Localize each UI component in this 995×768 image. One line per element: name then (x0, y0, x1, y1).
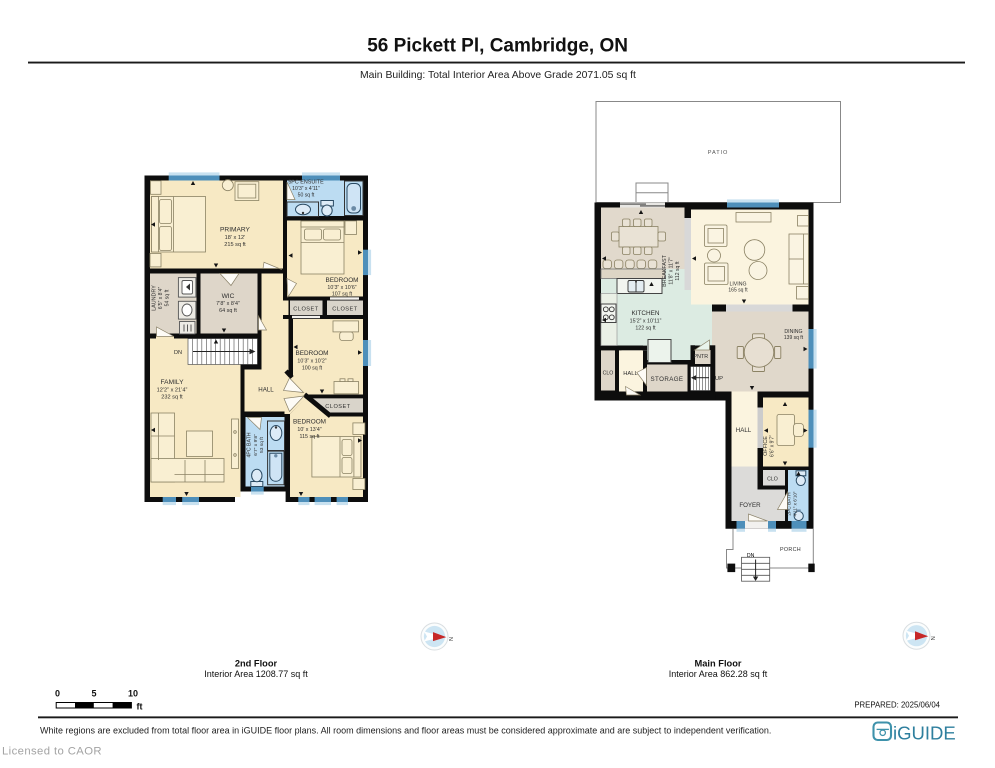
svg-text:FOYER: FOYER (739, 502, 761, 509)
svg-text:STORAGE: STORAGE (651, 376, 684, 383)
svg-text:FAMILY: FAMILY (161, 379, 185, 386)
svg-text:PRIMARY: PRIMARY (220, 227, 251, 234)
svg-text:BREAKFAST: BREAKFAST (662, 254, 668, 286)
svg-text:53 sq ft: 53 sq ft (259, 436, 265, 453)
svg-text:7’8” x 8’4”: 7’8” x 8’4” (216, 301, 240, 307)
svg-text:BEDROOM: BEDROOM (293, 419, 326, 426)
svg-text:BEDROOM: BEDROOM (295, 350, 328, 357)
svg-text:HALL: HALL (623, 371, 638, 377)
svg-text:10’3” x 10’6”: 10’3” x 10’6” (327, 285, 356, 291)
svg-text:4’11” x 6’10”: 4’11” x 6’10” (793, 491, 798, 516)
svg-text:6’7” x 9’8”: 6’7” x 9’8” (253, 434, 259, 456)
svg-text:0: 0 (55, 688, 60, 698)
svg-text:6’5” x 8’4”: 6’5” x 8’4” (158, 287, 164, 310)
svg-text:Main Floor: Main Floor (695, 659, 742, 669)
svg-text:CLOSET: CLOSET (332, 306, 357, 312)
svg-text:PATIO: PATIO (708, 150, 728, 156)
svg-text:112 sq ft: 112 sq ft (675, 261, 681, 281)
svg-text:HALL: HALL (736, 427, 752, 434)
svg-text:6’6” x 9’7”: 6’6” x 9’7” (770, 435, 776, 457)
svg-text:N: N (447, 637, 453, 641)
svg-text:139 sq ft: 139 sq ft (784, 335, 804, 341)
svg-text:5: 5 (91, 688, 96, 698)
svg-text:64 sq ft: 64 sq ft (219, 308, 237, 314)
svg-text:11’8” x 11’7”: 11’8” x 11’7” (669, 257, 675, 285)
svg-text:56 Pickett Pl, Cambridge, ON: 56 Pickett Pl, Cambridge, ON (367, 36, 628, 57)
svg-text:165 sq ft: 165 sq ft (728, 287, 748, 293)
svg-text:DN: DN (747, 553, 755, 559)
svg-text:Main Building: Total Interior: Main Building: Total Interior Area Above… (360, 70, 636, 81)
svg-text:2nd Floor: 2nd Floor (235, 659, 278, 669)
svg-text:5PC ENSUITE: 5PC ENSUITE (288, 180, 324, 186)
svg-text:Interior Area 1208.77 sq ft: Interior Area 1208.77 sq ft (204, 669, 308, 679)
svg-text:UP: UP (715, 376, 723, 382)
svg-text:122 sq ft: 122 sq ft (635, 325, 656, 331)
svg-text:Interior Area 862.28 sq ft: Interior Area 862.28 sq ft (669, 669, 768, 679)
svg-text:12’2” x 21’4”: 12’2” x 21’4” (157, 387, 188, 393)
svg-text:BEDROOM: BEDROOM (325, 277, 358, 284)
svg-text:50 sq ft: 50 sq ft (298, 192, 315, 198)
svg-text:10’3” x 4’11”: 10’3” x 4’11” (292, 186, 320, 192)
svg-text:KITCHEN: KITCHEN (631, 310, 659, 317)
svg-text:4PC BATH: 4PC BATH (247, 432, 253, 457)
svg-text:54 sq ft: 54 sq ft (164, 289, 170, 306)
svg-text:White regions are excluded fro: White regions are excluded from total fl… (40, 725, 771, 735)
svg-text:OFFICE: OFFICE (763, 436, 769, 456)
svg-text:15’2” x 10’11”: 15’2” x 10’11” (630, 318, 662, 324)
svg-text:PORCH: PORCH (780, 547, 801, 553)
svg-text:10’3” x 10’2”: 10’3” x 10’2” (297, 358, 326, 364)
svg-text:107 sq ft: 107 sq ft (332, 291, 353, 297)
svg-text:115 sq ft: 115 sq ft (300, 434, 320, 440)
svg-text:PNTR: PNTR (693, 354, 708, 360)
svg-text:CLO: CLO (767, 477, 778, 483)
svg-text:CLOSET: CLOSET (325, 404, 350, 410)
svg-text:100 sq ft: 100 sq ft (302, 365, 323, 371)
svg-text:WIC: WIC (222, 293, 235, 300)
svg-text:ft: ft (137, 702, 143, 712)
svg-text:215 sq ft: 215 sq ft (224, 242, 246, 248)
svg-text:PREPARED: 2025/06/04: PREPARED: 2025/06/04 (854, 701, 940, 710)
svg-text:iGUIDE: iGUIDE (893, 723, 956, 744)
svg-text:N: N (929, 636, 935, 640)
svg-text:10’ x 13’4”: 10’ x 13’4” (297, 427, 321, 433)
svg-text:CLOSET: CLOSET (293, 306, 318, 312)
svg-text:LAUNDRY: LAUNDRY (152, 285, 158, 311)
svg-text:232 sq ft: 232 sq ft (161, 394, 183, 400)
svg-text:DN: DN (174, 350, 182, 356)
svg-text:18’ x 12’: 18’ x 12’ (225, 235, 246, 241)
svg-text:Licensed to CAOR: Licensed to CAOR (2, 746, 102, 758)
svg-text:CLO: CLO (603, 371, 614, 377)
svg-text:HALL: HALL (258, 387, 274, 394)
svg-text:10: 10 (128, 688, 138, 698)
